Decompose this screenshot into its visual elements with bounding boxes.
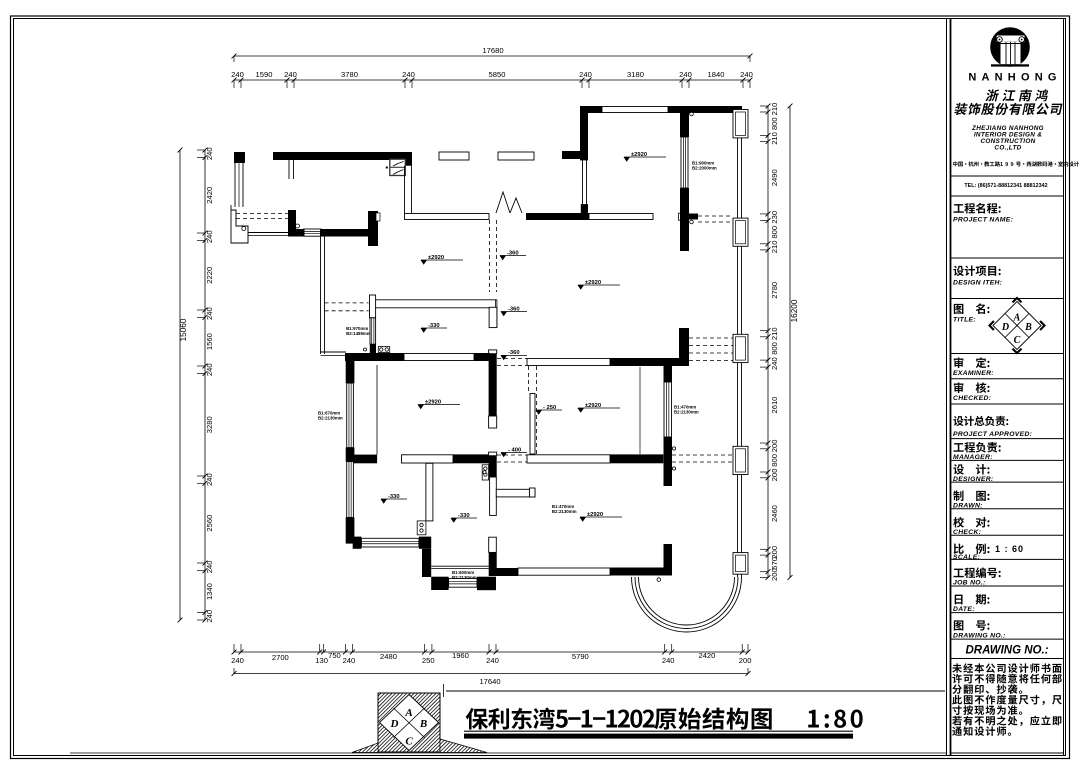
svg-text:JOB NO.:: JOB NO.:	[953, 580, 986, 587]
svg-text:-360: -360	[508, 350, 520, 356]
svg-text:2480: 2480	[380, 652, 397, 661]
svg-text:C: C	[1014, 335, 1021, 346]
svg-text:±2920: ±2920	[425, 399, 441, 405]
svg-text:B2:1489mm: B2:1489mm	[346, 331, 371, 336]
svg-text:±2920: ±2920	[587, 512, 603, 518]
svg-text:B: B	[419, 718, 427, 730]
svg-text:240: 240	[740, 70, 753, 79]
svg-text:±2920: ±2920	[631, 152, 647, 158]
svg-text:240: 240	[205, 610, 214, 623]
svg-text:250: 250	[422, 656, 435, 665]
svg-text:17640: 17640	[479, 677, 500, 686]
svg-text:-360: -360	[507, 250, 519, 256]
svg-text:3180: 3180	[627, 70, 644, 79]
svg-text:MANAGER:: MANAGER:	[953, 454, 993, 461]
svg-text:15060: 15060	[179, 318, 188, 341]
svg-text:B: B	[1024, 322, 1032, 333]
svg-text:800: 800	[770, 226, 779, 239]
svg-text:570: 570	[770, 557, 779, 570]
svg-text:17680: 17680	[482, 46, 503, 55]
svg-text:DATE:: DATE:	[953, 606, 975, 613]
svg-text:B2:2000mm: B2:2000mm	[692, 166, 717, 171]
svg-text:240: 240	[205, 363, 214, 376]
svg-text:200: 200	[770, 469, 779, 482]
svg-text:240: 240	[679, 70, 692, 79]
svg-text:DRAWING NO.:: DRAWING NO.:	[965, 645, 1048, 657]
svg-text:800: 800	[770, 454, 779, 467]
svg-text:B2:2130mm: B2:2130mm	[318, 416, 343, 421]
svg-text:1590: 1590	[256, 70, 273, 79]
svg-text:-330: -330	[458, 513, 470, 519]
svg-text:240: 240	[231, 70, 244, 79]
svg-text:130: 130	[315, 656, 328, 665]
svg-text:1340: 1340	[205, 583, 214, 600]
svg-text:240: 240	[205, 147, 214, 160]
svg-text:210: 210	[770, 132, 779, 145]
svg-text:±2920: ±2920	[585, 403, 601, 409]
svg-text:2700: 2700	[272, 653, 289, 662]
svg-text:210: 210	[770, 327, 779, 340]
svg-text:240: 240	[579, 70, 592, 79]
svg-text:TEL: (86)571-88812341 888123: TEL: (86)571-88812341 88812342	[964, 183, 1047, 189]
svg-text:230: 230	[770, 211, 779, 224]
svg-text:TITLE:: TITLE:	[953, 317, 976, 324]
svg-text:D: D	[1001, 322, 1009, 333]
svg-text:1560: 1560	[205, 333, 214, 350]
svg-text:2780: 2780	[770, 282, 779, 299]
svg-text:CO.,LTD: CO.,LTD	[994, 145, 1021, 152]
svg-text:C: C	[405, 736, 413, 748]
svg-text:240: 240	[343, 656, 356, 665]
svg-text:DRAWN:: DRAWN:	[953, 503, 983, 510]
svg-text:240: 240	[205, 561, 214, 574]
svg-text:800: 800	[770, 117, 779, 130]
svg-text:200: 200	[770, 546, 779, 559]
svg-text:A: A	[1013, 313, 1021, 324]
svg-text:200: 200	[770, 440, 779, 453]
svg-text:240: 240	[402, 70, 415, 79]
svg-text:2490: 2490	[770, 169, 779, 186]
svg-text:EXAMINER:: EXAMINER:	[953, 370, 994, 377]
svg-text:2610: 2610	[770, 397, 779, 414]
svg-text:240: 240	[205, 473, 214, 486]
svg-text:±2920: ±2920	[585, 280, 601, 286]
svg-text:-330: -330	[388, 494, 400, 500]
svg-text:800: 800	[770, 342, 779, 355]
svg-text:2420: 2420	[698, 651, 715, 660]
svg-text:DESIGNER:: DESIGNER:	[953, 476, 993, 483]
svg-text:240: 240	[662, 656, 675, 665]
svg-text:240: 240	[205, 230, 214, 243]
svg-text:200: 200	[739, 656, 752, 665]
svg-text:5850: 5850	[489, 70, 506, 79]
svg-text:210: 210	[770, 103, 779, 116]
svg-text:750: 750	[328, 651, 341, 660]
svg-text:1 : 60: 1 : 60	[995, 544, 1024, 554]
svg-text:240: 240	[486, 656, 499, 665]
svg-text:1840: 1840	[708, 70, 725, 79]
svg-text:SCALE:: SCALE:	[953, 554, 980, 561]
svg-text:16200: 16200	[790, 299, 799, 322]
svg-text:- 400: - 400	[508, 447, 521, 453]
svg-text:B2:2130mm: B2:2130mm	[674, 410, 699, 415]
svg-text:PROJECT NAME:: PROJECT NAME:	[953, 217, 1013, 224]
svg-text:1960: 1960	[452, 651, 469, 660]
svg-text:2420: 2420	[205, 187, 214, 204]
svg-text:-330: -330	[428, 323, 440, 329]
svg-text:DESIGN ITEH:: DESIGN ITEH:	[953, 280, 1002, 287]
svg-text:2560: 2560	[205, 515, 214, 532]
svg-text:NANHONG: NANHONG	[968, 72, 1061, 84]
svg-text:2460: 2460	[770, 505, 779, 522]
svg-text:B2:2130mm: B2:2130mm	[552, 509, 577, 514]
svg-text:B2:2130mm: B2:2130mm	[452, 575, 477, 580]
svg-text:240: 240	[284, 70, 297, 79]
svg-text:CHECKED:: CHECKED:	[953, 395, 991, 402]
svg-text:240: 240	[770, 357, 779, 370]
svg-text:200: 200	[770, 568, 779, 581]
svg-text:240: 240	[205, 307, 214, 320]
svg-text:CHECK:: CHECK:	[953, 529, 981, 536]
svg-text:D: D	[390, 718, 399, 730]
svg-text:±2920: ±2920	[428, 255, 444, 261]
svg-text:A: A	[404, 707, 412, 719]
svg-text:240: 240	[231, 656, 244, 665]
svg-text:DRAWING NO.:: DRAWING NO.:	[953, 632, 1006, 639]
svg-text:210: 210	[770, 241, 779, 254]
svg-text:PROJECT APPROVED:: PROJECT APPROVED:	[953, 431, 1032, 438]
svg-text:-360: -360	[508, 306, 520, 312]
svg-text:5790: 5790	[572, 652, 589, 661]
svg-text:- 250: - 250	[543, 405, 556, 411]
svg-text:2220: 2220	[205, 267, 214, 284]
svg-text:3280: 3280	[205, 416, 214, 433]
svg-text:3780: 3780	[341, 70, 358, 79]
